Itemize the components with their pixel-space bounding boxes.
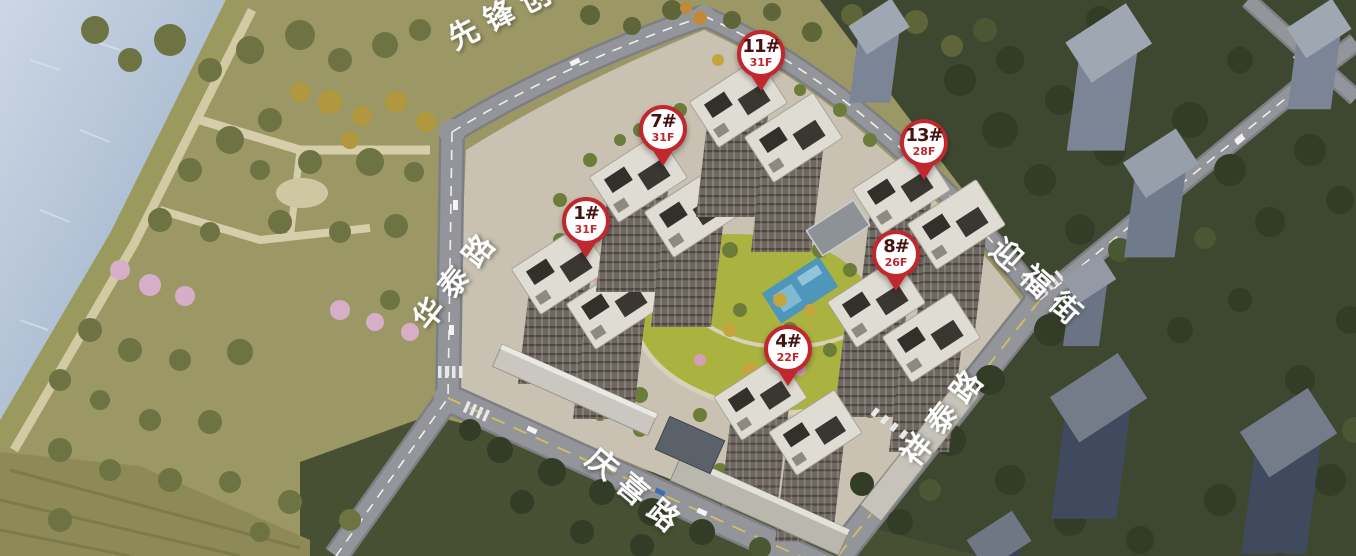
building-marker-11[interactable]: 11# 31F	[733, 30, 789, 91]
building-floors: 31F	[652, 131, 675, 144]
marker-bubble: 7# 31F	[639, 105, 687, 153]
site-aerial-map: 先锋创意 华泰路 迎福街 祥泰路 庆喜路 1# 31F 4# 22F 7# 31…	[0, 0, 1356, 556]
building-number: 7#	[650, 113, 676, 131]
building-marker-7[interactable]: 7# 31F	[635, 105, 691, 166]
building-marker-1[interactable]: 1# 31F	[558, 197, 614, 258]
marker-bubble: 13# 28F	[900, 119, 948, 167]
building-floors: 28F	[913, 145, 936, 158]
building-floors: 31F	[575, 223, 598, 236]
building-number: 13#	[905, 127, 942, 145]
building-number: 1#	[573, 205, 599, 223]
building-marker-8[interactable]: 8# 26F	[868, 230, 924, 291]
building-number: 11#	[742, 38, 779, 56]
building-number: 8#	[883, 238, 909, 256]
building-number: 4#	[775, 333, 801, 351]
marker-bubble: 11# 31F	[737, 30, 785, 78]
building-floors: 31F	[750, 56, 773, 69]
marker-bubble: 8# 26F	[872, 230, 920, 278]
marker-bubble: 1# 31F	[562, 197, 610, 245]
building-marker-4[interactable]: 4# 22F	[760, 325, 816, 386]
marker-bubble: 4# 22F	[764, 325, 812, 373]
building-floors: 26F	[885, 256, 908, 269]
building-marker-13[interactable]: 13# 28F	[896, 119, 952, 180]
aerial-render: 先锋创意 华泰路 迎福街 祥泰路 庆喜路	[0, 0, 1356, 556]
building-floors: 22F	[777, 351, 800, 364]
